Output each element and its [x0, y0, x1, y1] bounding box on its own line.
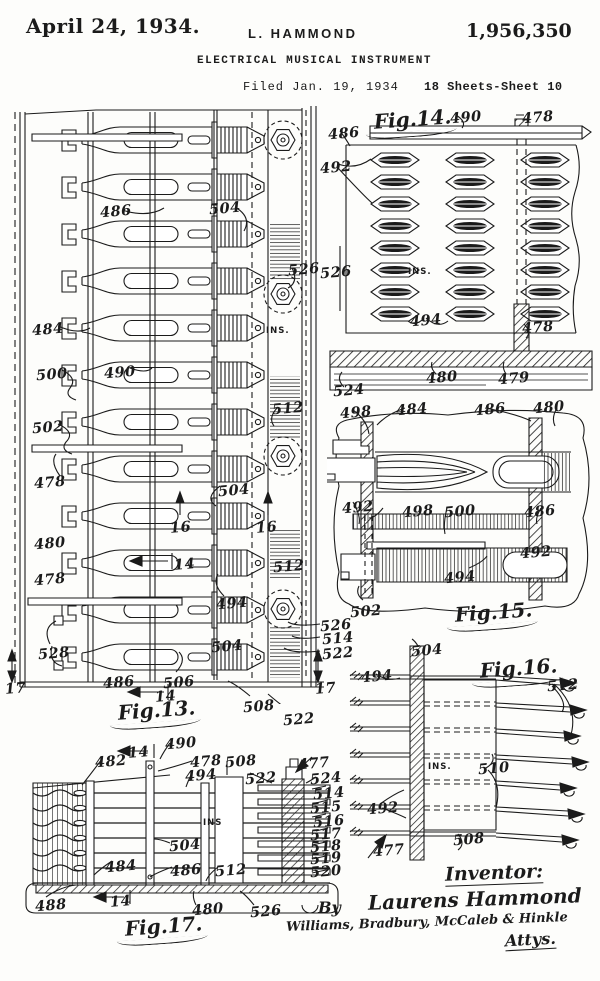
ref-label: 484	[31, 320, 64, 340]
patent-sheet: April 24, 1934. L. HAMMOND 1,956,350 ELE…	[0, 0, 600, 981]
ref-label: 482	[94, 752, 127, 772]
fig16-caption: Fig.16.	[479, 653, 558, 688]
ref-label: 492	[341, 498, 374, 518]
ref-label: 522	[282, 710, 315, 730]
ref-label: 522	[244, 769, 277, 789]
ref-label: 478	[521, 108, 554, 128]
fig17-caption: Fig.17.	[124, 911, 203, 946]
ref-label: 492	[366, 799, 399, 819]
ref-label: 478	[33, 570, 66, 590]
ref-label: 508	[224, 752, 257, 772]
ins-label: INS	[203, 818, 222, 828]
filed-date: Filed Jan. 19, 1934	[243, 80, 399, 94]
ref-label: 17	[4, 679, 27, 698]
ref-label: 526	[249, 902, 282, 922]
ref-label: 480	[33, 534, 66, 554]
ref-label: 510	[477, 759, 510, 779]
ref-label: 486	[327, 124, 360, 144]
ref-label: 512	[271, 399, 304, 419]
sheet-number: 18 Sheets-Sheet 10	[424, 80, 563, 94]
ref-label: 16	[169, 518, 192, 537]
fig15-caption: Fig.15.	[454, 597, 533, 632]
ref-label: 480	[425, 368, 458, 388]
ref-label: 14	[127, 743, 150, 762]
ref-label: 479	[497, 369, 530, 389]
inventor-header: L. HAMMOND	[248, 26, 358, 41]
ref-label: 500	[443, 502, 476, 522]
ref-label: 492	[319, 158, 352, 178]
ref-label: 494	[360, 667, 393, 687]
ref-label: 484	[104, 857, 137, 877]
ref-label: 526	[287, 260, 320, 280]
ref-label: 14	[173, 555, 196, 574]
ref-label: 512	[272, 557, 305, 577]
ref-label: 528	[37, 644, 70, 664]
attys-label: Attys.	[505, 929, 557, 952]
ref-label: 508	[242, 697, 275, 717]
ins-label: INS.	[266, 326, 290, 336]
ref-label: 494	[184, 766, 217, 786]
ref-label: 494	[443, 568, 476, 588]
ref-label: 494	[215, 594, 248, 614]
ref-label: 486	[102, 673, 135, 693]
ref-label: 478	[521, 318, 554, 338]
ref-label: 498	[339, 403, 372, 423]
fig14-caption: Fig.14.	[373, 104, 452, 139]
ref-label: 480	[532, 398, 565, 418]
patent-date: April 24, 1934.	[26, 14, 200, 38]
patent-title: ELECTRICAL MUSICAL INSTRUMENT	[197, 55, 432, 67]
fig14-drawing	[326, 106, 598, 398]
inventor-heading: Inventor:	[445, 860, 544, 886]
ref-label: 478	[33, 473, 66, 493]
ref-label: 477	[372, 841, 405, 861]
ref-label: 504	[217, 481, 250, 501]
ref-label: 486	[473, 400, 506, 420]
ref-label: 484	[395, 400, 428, 420]
ref-label: 512	[214, 861, 247, 881]
ref-label: 502	[349, 602, 382, 622]
ref-label: 498	[401, 502, 434, 522]
patent-number: 1,956,350	[466, 20, 572, 42]
ref-label: 490	[103, 363, 136, 383]
ref-label: 520	[309, 862, 342, 882]
ref-label: 504	[210, 637, 243, 657]
by-label: By	[318, 898, 341, 917]
ref-label: 522	[321, 644, 354, 664]
ref-label: 14	[109, 892, 132, 911]
ref-label: 490	[164, 734, 197, 754]
ref-label: 500	[35, 365, 68, 385]
ref-label: 486	[523, 502, 556, 522]
ref-label: 492	[519, 543, 552, 563]
ref-label: 486	[99, 202, 132, 222]
ref-label: 526	[319, 263, 352, 283]
ref-label: 486	[169, 861, 202, 881]
ins-label: INS.	[428, 762, 452, 772]
fig13-caption: Fig.13.	[117, 695, 196, 730]
ref-label: 504	[168, 836, 201, 856]
ref-label: 17	[314, 679, 337, 698]
ref-label: 494	[409, 311, 442, 331]
ins-label: INS.	[408, 267, 432, 277]
ref-label: 502	[31, 418, 64, 438]
ref-label: 16	[255, 518, 278, 537]
ref-label: 508	[452, 830, 485, 850]
ref-label: 504	[410, 641, 443, 661]
ref-label: 490	[449, 108, 482, 128]
ref-label: 524	[332, 381, 365, 401]
ref-label: 504	[208, 199, 241, 219]
ref-label: 488	[34, 896, 67, 916]
